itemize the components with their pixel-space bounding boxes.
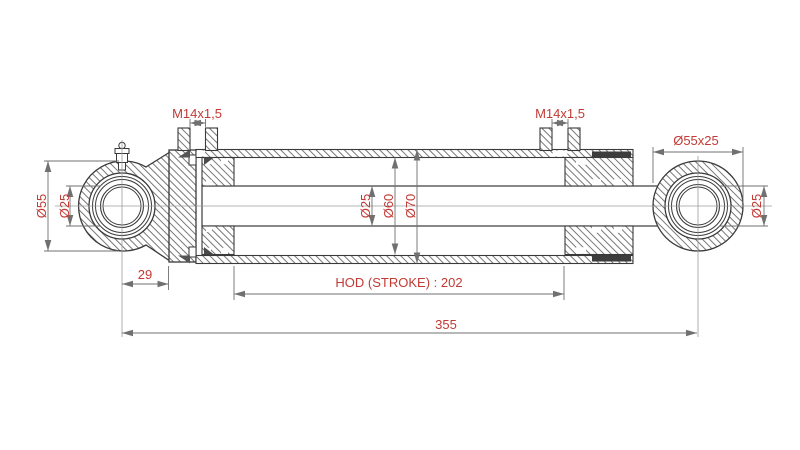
gland-seal (592, 256, 631, 262)
label-right-eye-size: Ø55x25 (673, 133, 719, 148)
port-opening (553, 151, 568, 157)
cylinder-technical-drawing-page: M14x1,5 M14x1,5 Ø55x25 Ø25 Ø55 Ø25 Ø25 Ø… (0, 0, 800, 450)
hydraulic-cylinder-drawing: M14x1,5 M14x1,5 Ø55x25 Ø25 Ø55 Ø25 Ø25 Ø… (0, 0, 800, 450)
gland-seal (592, 152, 631, 158)
port-right (540, 128, 580, 151)
label-overall-length: 355 (435, 317, 457, 332)
label-bore-diameter: Ø60 (381, 194, 396, 219)
label-port-left: M14x1,5 (172, 106, 222, 121)
cylinder-cap (169, 150, 196, 264)
label-rod-diameter: Ø25 (358, 194, 373, 219)
label-port-right: M14x1,5 (535, 106, 585, 121)
label-left-eye-outer: Ø55 (34, 194, 49, 219)
label-right-eye-bore: Ø25 (749, 194, 764, 219)
port-opening (197, 151, 205, 157)
label-stroke: HOD (STROKE) : 202 (335, 275, 462, 290)
port-left (178, 128, 218, 151)
label-left-offset: 29 (138, 267, 152, 282)
label-outer-diameter: Ø70 (403, 194, 418, 219)
label-left-eye-bore: Ø25 (57, 194, 72, 219)
